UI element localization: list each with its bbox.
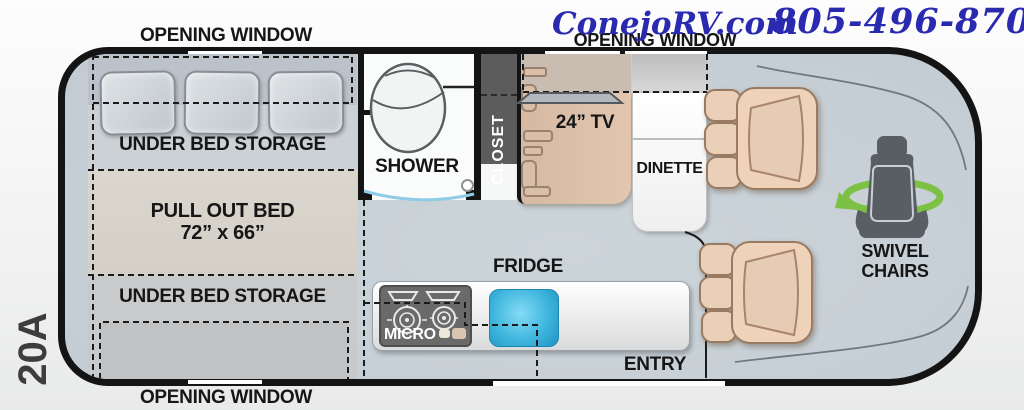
- dealer-phone-text: 805-496-8700: [772, 1, 1024, 42]
- tv-shelf: [518, 93, 622, 103]
- opening-window-slot-bottom: [188, 380, 262, 384]
- rv-body-outline: UNDER BED STORAGE PULL OUT BED 72” x 66”…: [58, 47, 982, 386]
- window-mullion: [620, 49, 625, 54]
- floorplan-model-number: 20A: [12, 304, 54, 394]
- floorplan-linework: [65, 54, 975, 379]
- cab-seat-rear: [700, 242, 812, 343]
- opening-window-label-bottom: OPENING WINDOW: [118, 387, 334, 409]
- shower-curtain-arc: [364, 191, 474, 200]
- opening-window-slot-top-left: [188, 49, 262, 54]
- entry-door-opening: [493, 381, 725, 386]
- toilet-icon: [371, 64, 474, 152]
- rv-floorplan-canvas: ConejoRV.com 805-496-8700 OPENING WINDOW…: [0, 0, 1024, 410]
- swivel-chair-icon: [835, 136, 940, 238]
- cab-seat-front: [705, 88, 817, 189]
- opening-window-label-top-left: OPENING WINDOW: [118, 25, 334, 47]
- dealer-website-text: ConejoRV.com: [552, 6, 798, 42]
